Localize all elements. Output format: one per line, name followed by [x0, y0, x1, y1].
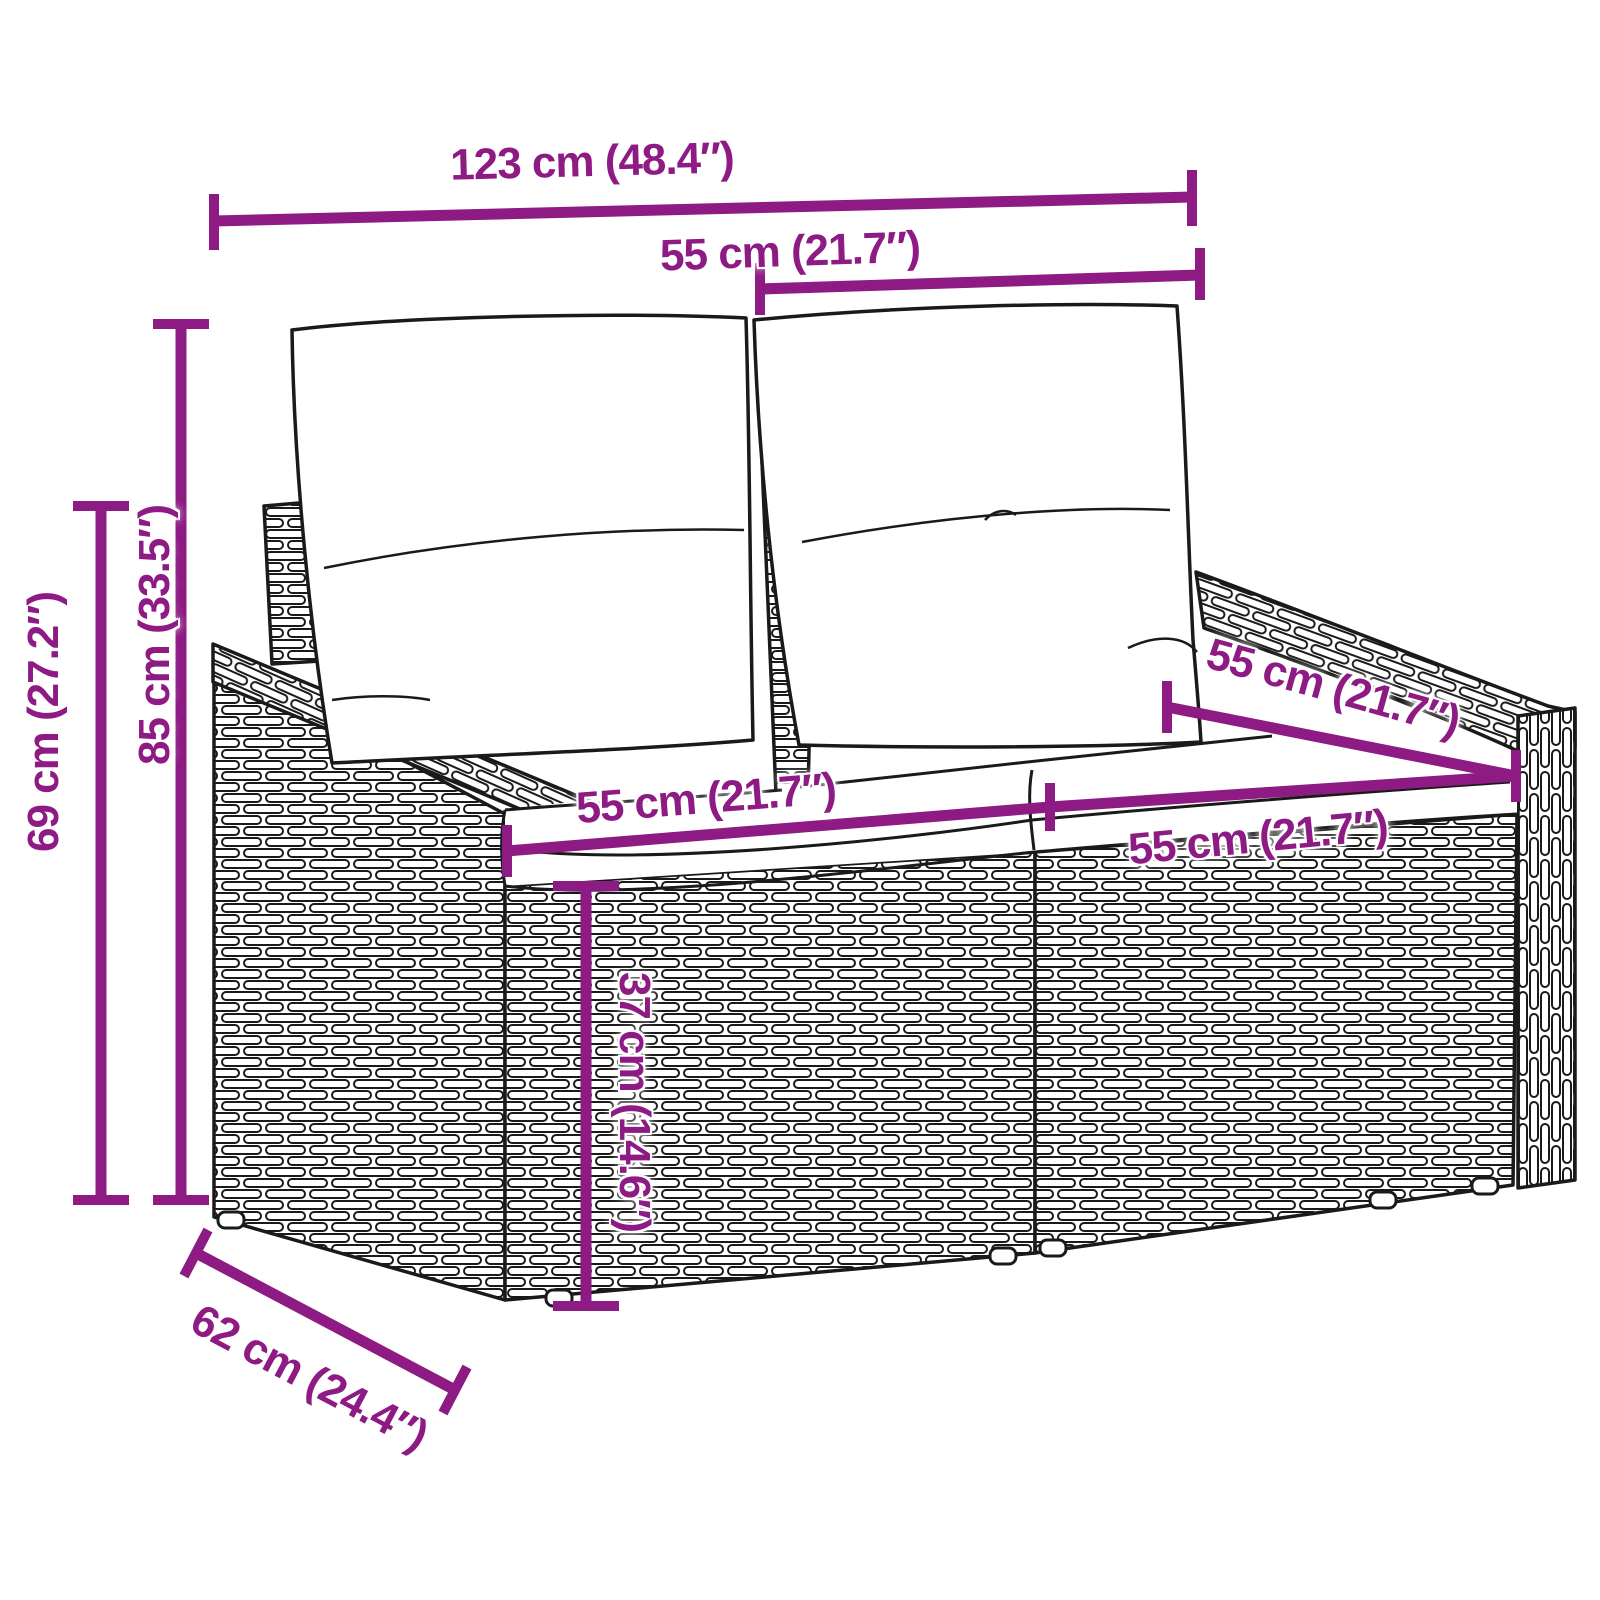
foot: [218, 1212, 244, 1228]
dim-line-back-cushion-width: [760, 275, 1200, 289]
back-pillows: [292, 305, 1201, 763]
dim-label-back-height: 69 cm (27.2″): [22, 592, 66, 852]
dimension-diagram: 123 cm (48.4″) 55 cm (21.7″) 69 cm (27.2…: [0, 0, 1600, 1600]
right-seat-box: [1035, 814, 1517, 1253]
foot: [1040, 1240, 1066, 1256]
dim-label-total-height: 85 cm (33.5″): [133, 505, 177, 765]
right-back-pillow: [754, 305, 1201, 747]
dim-line-overall-width: [214, 197, 1192, 221]
foot: [1472, 1178, 1498, 1194]
dim-label-overall-width: 123 cm (48.4″): [450, 136, 735, 187]
foot: [1370, 1192, 1396, 1208]
dim-label-back-cushion-width: 55 cm (21.7″): [659, 225, 920, 278]
foot: [990, 1248, 1016, 1264]
right-arm-post: [1518, 708, 1575, 1188]
dim-label-seat-height: 37 cm (14.6″): [612, 972, 656, 1232]
